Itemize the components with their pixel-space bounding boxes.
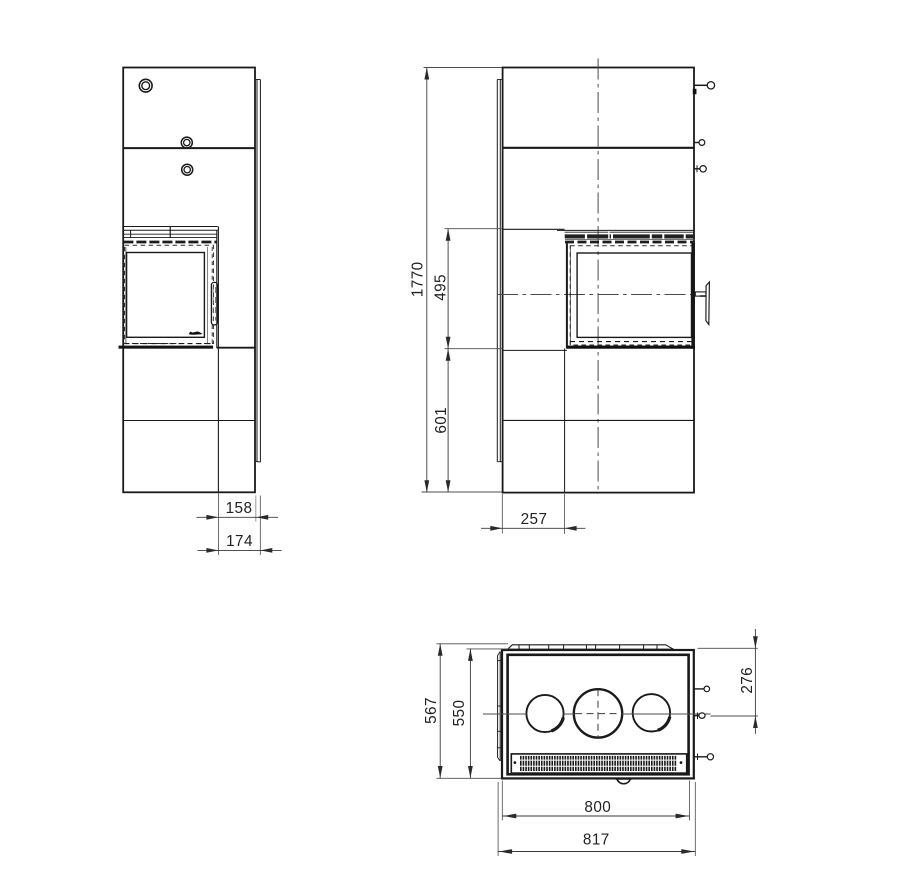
svg-text:550: 550	[451, 700, 468, 727]
svg-text:257: 257	[521, 511, 548, 528]
svg-text:1770: 1770	[409, 261, 426, 297]
svg-text:817: 817	[583, 832, 610, 849]
svg-text:601: 601	[433, 407, 450, 434]
svg-text:276: 276	[739, 667, 756, 694]
svg-text:567: 567	[423, 697, 440, 724]
svg-text:495: 495	[432, 274, 449, 301]
svg-text:174: 174	[226, 533, 253, 550]
svg-text:800: 800	[584, 799, 611, 816]
svg-text:158: 158	[226, 500, 253, 517]
